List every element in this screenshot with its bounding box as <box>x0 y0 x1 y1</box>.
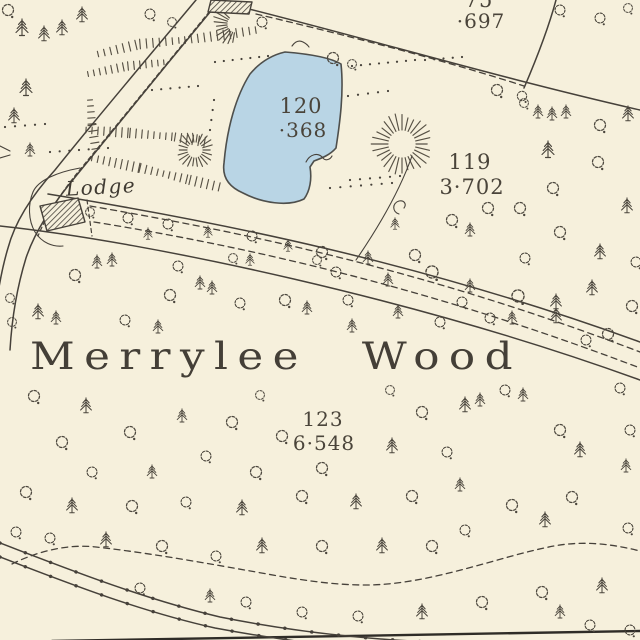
conifer-tree-icon <box>507 311 517 324</box>
conifer-tree-icon <box>555 605 565 618</box>
conifer-tree-icon <box>77 7 88 22</box>
road-edge-west <box>0 0 196 330</box>
deciduous-tree-icon <box>623 523 633 535</box>
conifer-tree-icon <box>587 280 598 295</box>
deciduous-tree-icon <box>165 290 176 304</box>
deciduous-tree-icon <box>581 335 591 347</box>
bottom-road-trees-lower <box>0 557 362 640</box>
deciduous-tree-icon <box>517 91 526 103</box>
deciduous-tree-icon <box>507 500 518 514</box>
deciduous-tree-icon <box>410 250 421 264</box>
deciduous-tree-icon <box>512 290 524 305</box>
conifer-tree-icon <box>540 512 551 527</box>
deciduous-tree-icon <box>163 219 173 231</box>
conifer-tree-icon <box>33 304 44 319</box>
bottom-road-edge-upper <box>0 543 432 640</box>
parcel-75-acreage: ·697 <box>457 9 506 33</box>
conifer-tree-icon <box>177 409 187 422</box>
conifer-tree-icon <box>284 240 292 252</box>
deciduous-tree-icon <box>460 525 470 537</box>
conifer-tree-icon <box>92 255 102 268</box>
deciduous-tree-icon <box>615 383 625 395</box>
conifer-tree-icon <box>391 218 399 230</box>
conifer-tree-icon <box>205 589 215 602</box>
lodge-label: Lodge <box>64 173 136 201</box>
conifer-tree-icon <box>417 604 428 619</box>
deciduous-tree-icon <box>168 18 177 29</box>
deciduous-tree-icon <box>6 294 15 305</box>
deciduous-tree-icon <box>331 267 341 279</box>
conifer-tree-icon <box>465 223 475 236</box>
deciduous-tree-icon <box>11 527 21 539</box>
conifer-tree-icon <box>16 19 28 36</box>
bottom-road-edge-lower <box>0 557 362 640</box>
parcel-120-acreage: ·368 <box>279 118 328 142</box>
bottom-road-trees-upper <box>0 543 432 640</box>
conifer-tree-icon <box>9 108 20 123</box>
conifer-tree-icon <box>195 276 205 289</box>
deciduous-tree-icon <box>595 120 606 134</box>
deciduous-tree-icon <box>21 487 32 501</box>
conifer-tree-icon <box>542 141 554 158</box>
deciduous-tree-icon <box>317 541 328 555</box>
conifer-tree-icon <box>237 500 248 515</box>
deciduous-tree-icon <box>627 301 638 315</box>
deciduous-tree-icon <box>87 467 97 479</box>
hook-mark-icon <box>394 201 405 214</box>
deciduous-tree-icon <box>548 183 559 197</box>
deciduous-tree-icon <box>515 203 526 217</box>
deciduous-tree-icon <box>537 587 548 601</box>
parcel-120-number: 120 <box>279 94 322 118</box>
conifer-tree-icon <box>363 251 373 264</box>
deciduous-tree-icon <box>625 425 635 437</box>
conifer-tree-icon <box>39 26 50 41</box>
conifer-tree-icon <box>595 244 606 259</box>
deciduous-tree-icon <box>555 5 565 17</box>
deciduous-tree-icon <box>251 467 262 481</box>
deciduous-tree-icon <box>241 597 251 609</box>
deciduous-tree-icon <box>45 533 55 545</box>
building-top-hatched <box>208 0 252 14</box>
lodge-enclosure-dash <box>87 200 92 236</box>
deciduous-tree-icon <box>297 491 308 505</box>
conifer-tree-icon <box>347 319 357 332</box>
bush-tuft-icon <box>292 41 309 47</box>
os-map-sheet: 75 ·697 120 ·368 119 3·702 123 6·548 Lod… <box>0 0 640 640</box>
conifer-tree-icon <box>67 498 78 513</box>
conifer-tree-icon <box>551 294 562 309</box>
conifer-tree-icon <box>57 20 68 35</box>
parcel-123-number: 123 <box>302 407 343 431</box>
deciduous-tree-icon <box>29 391 40 405</box>
deciduous-tree-icon <box>157 541 168 555</box>
conifer-tree-icon <box>51 311 61 324</box>
deciduous-tree-icon <box>483 203 494 217</box>
conifer-tree-icon <box>351 494 362 509</box>
conifer-tree-icon <box>393 305 403 318</box>
conifer-tree-icon <box>465 279 475 292</box>
conifer-tree-icon <box>144 228 152 240</box>
deciduous-tree-icon <box>145 9 155 21</box>
wood-name-label: Merrylee Wood <box>30 335 522 378</box>
deciduous-tree-icon <box>426 266 438 281</box>
deciduous-tree-icon <box>500 385 510 397</box>
deciduous-tree-icon <box>520 253 530 265</box>
conifer-tree-icon <box>246 254 254 266</box>
deciduous-tree-icon <box>317 463 328 477</box>
deciduous-tree-icon <box>227 417 238 431</box>
conifer-tree-icon <box>107 253 117 266</box>
deciduous-tree-icon <box>593 157 604 171</box>
deciduous-tree-icon <box>555 227 566 241</box>
deciduous-tree-icon <box>427 541 438 555</box>
deciduous-tree-icon <box>624 4 633 15</box>
conifer-tree-icon <box>81 398 92 413</box>
conifer-tree-icon <box>475 393 485 406</box>
conifer-tree-icon <box>460 397 471 412</box>
deciduous-tree-icon <box>211 551 221 563</box>
deciduous-tree-icon <box>585 620 595 632</box>
deciduous-tree-icon <box>235 298 245 310</box>
conifer-tree-icon <box>153 320 163 333</box>
conifer-tree-icon <box>561 105 571 118</box>
conifer-tree-icon <box>575 442 586 457</box>
deciduous-tree-icon <box>70 270 81 284</box>
deciduous-tree-icon <box>173 261 183 273</box>
conifer-tree-icon <box>518 388 528 401</box>
lodge-building <box>40 198 85 231</box>
deciduous-tree-icon <box>277 431 288 445</box>
deciduous-tree-icon <box>492 85 503 99</box>
deciduous-tree-icon <box>477 597 488 611</box>
conifer-tree-icon <box>533 105 543 118</box>
conifer-tree-icon <box>547 107 557 120</box>
parcel-119-number: 119 <box>448 150 491 174</box>
deciduous-tree-icon <box>127 501 138 515</box>
deciduous-tree-icon <box>229 254 238 265</box>
deciduous-tree-icon <box>435 317 445 329</box>
conifer-tree-icon <box>20 79 32 96</box>
deciduous-tree-icon <box>280 295 291 309</box>
deciduous-tree-icon <box>417 407 428 421</box>
conifer-tree-icon <box>377 538 388 553</box>
conifer-tree-icon <box>455 478 465 491</box>
deciduous-tree-icon <box>595 13 605 25</box>
deciduous-tree-icon <box>442 447 452 459</box>
conifer-tree-icon <box>257 538 268 553</box>
deciduous-tree-icon <box>257 17 267 29</box>
deciduous-tree-icon <box>353 611 363 623</box>
deciduous-tree-icon <box>201 451 211 463</box>
deciduous-tree-icon <box>313 256 322 267</box>
conifer-tree-icon <box>101 532 112 547</box>
deciduous-tree-icon <box>343 295 353 307</box>
deciduous-tree-icon <box>386 386 395 397</box>
deciduous-tree-icon <box>457 297 467 309</box>
conifer-tree-icon <box>597 578 608 593</box>
deciduous-tree-icon <box>297 607 307 619</box>
deciduous-tree-icon <box>120 315 130 327</box>
field-boundary-vertical <box>524 0 556 88</box>
deciduous-tree-icon <box>123 213 133 225</box>
conifer-tree-icon <box>147 465 157 478</box>
deciduous-tree-icon <box>86 208 95 219</box>
deciduous-tree-icon <box>3 5 14 19</box>
conifer-tree-icon <box>387 438 398 453</box>
parcel-119-acreage: 3·702 <box>439 175 504 199</box>
gate-mark <box>0 146 10 158</box>
map-canvas: 75 ·697 120 ·368 119 3·702 123 6·548 Lod… <box>0 0 640 640</box>
deciduous-tree-icon <box>567 492 578 506</box>
deciduous-tree-icon <box>256 391 265 402</box>
deciduous-tree-icon <box>631 257 640 269</box>
deciduous-tree-icon <box>555 425 566 439</box>
deciduous-tree-icon <box>125 427 136 441</box>
deciduous-tree-icon <box>57 437 68 451</box>
conifer-tree-icon <box>621 459 631 472</box>
conifer-tree-icon <box>207 281 217 294</box>
conifer-tree-icon <box>622 198 633 213</box>
deciduous-tree-icon <box>181 497 191 509</box>
parcel-123-acreage: 6·548 <box>293 431 355 455</box>
deciduous-tree-icon <box>447 215 458 229</box>
deciduous-tree-icon <box>407 491 418 505</box>
conifer-tree-icon <box>302 301 312 314</box>
conifer-tree-icon <box>25 143 35 156</box>
